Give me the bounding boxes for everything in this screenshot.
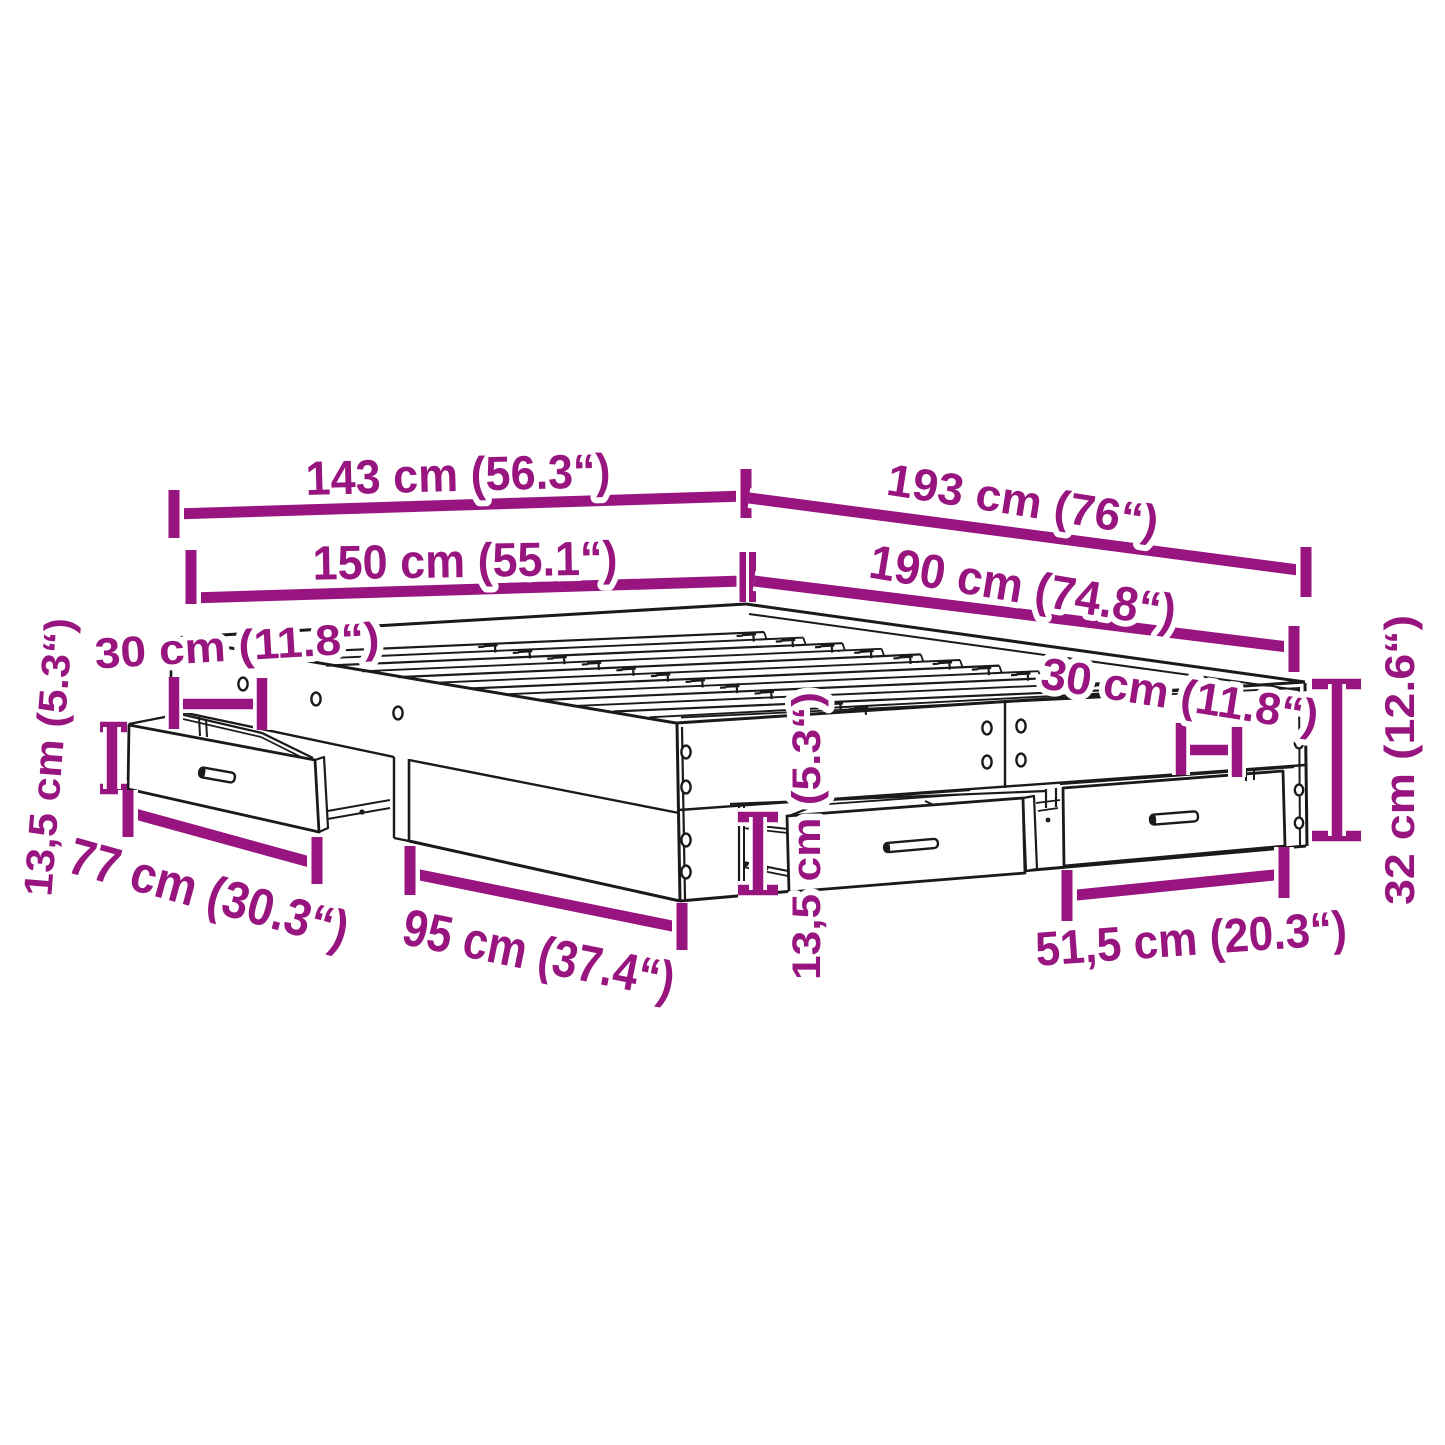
svg-text:32 cm (12.6“): 32 cm (12.6“): [1376, 615, 1423, 905]
svg-text:150 cm (55.1“): 150 cm (55.1“): [312, 532, 618, 590]
svg-text:143 cm (56.3“): 143 cm (56.3“): [305, 445, 611, 506]
svg-text:13,5 cm (5.3“): 13,5 cm (5.3“): [785, 692, 829, 980]
